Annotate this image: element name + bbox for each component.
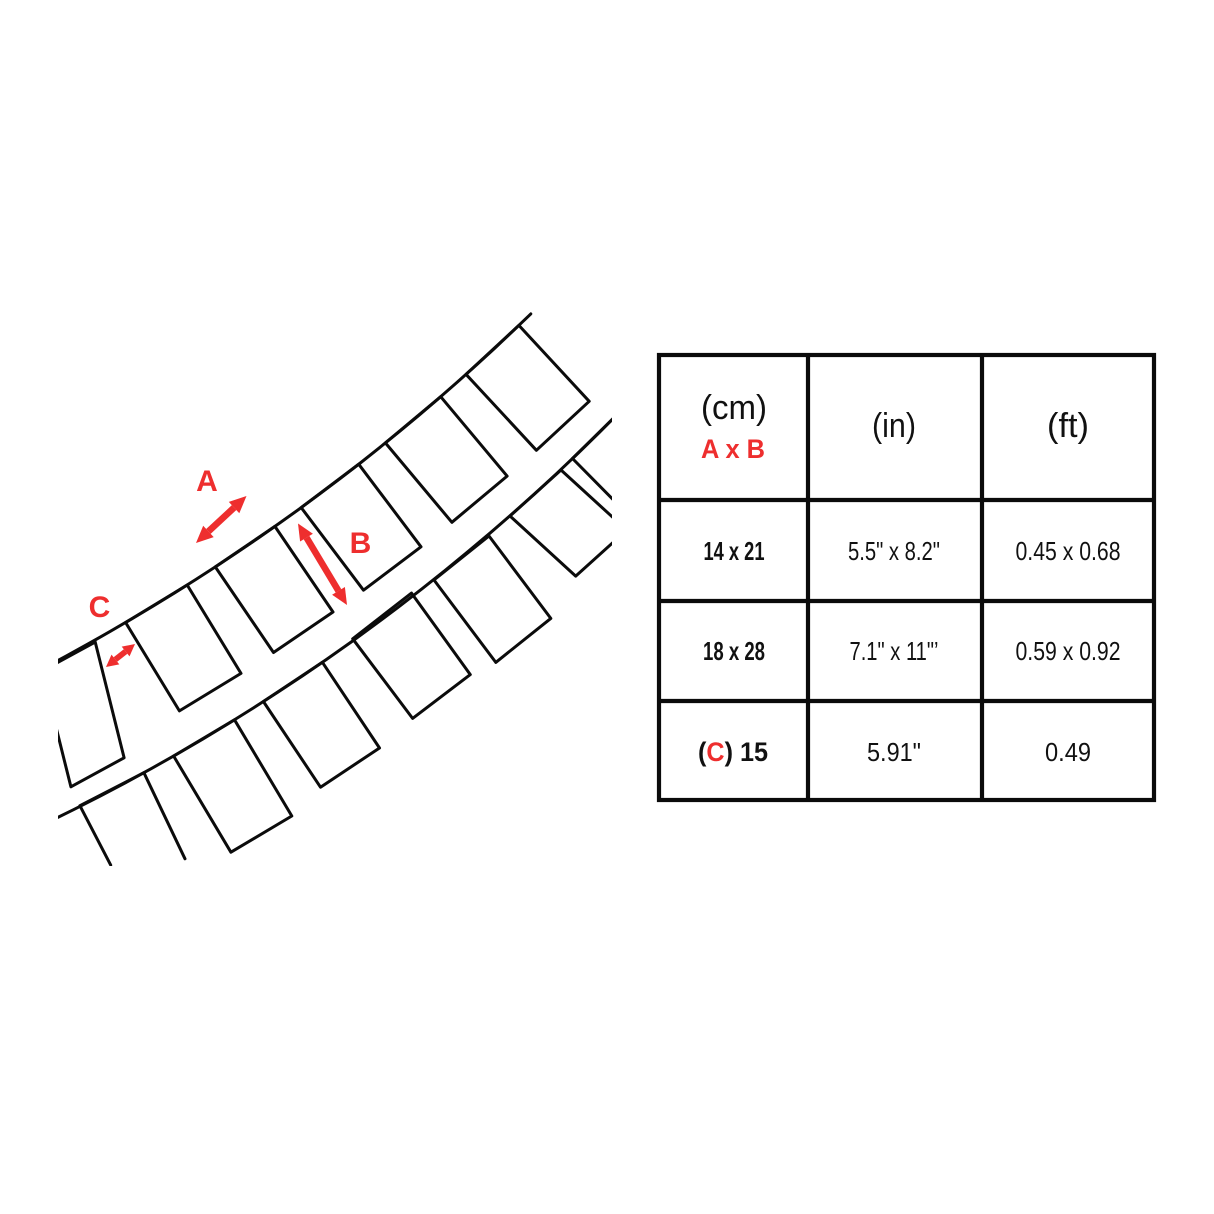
svg-text:(C) 15: (C) 15 — [698, 737, 768, 767]
svg-text:0.59 x 0.92: 0.59 x 0.92 — [1016, 636, 1121, 666]
svg-text:18 x 28: 18 x 28 — [703, 636, 765, 666]
svg-text:(ft): (ft) — [1047, 407, 1089, 445]
svg-text:A: A — [196, 465, 218, 498]
svg-text:C: C — [89, 591, 111, 624]
svg-text:0.45 x 0.68: 0.45 x 0.68 — [1016, 536, 1121, 566]
svg-text:5.5" x 8.2": 5.5" x 8.2" — [848, 536, 940, 566]
svg-text:5.91": 5.91" — [867, 737, 921, 767]
svg-text:(cm): (cm) — [701, 389, 767, 427]
svg-text:A x B: A x B — [701, 434, 765, 464]
svg-text:B: B — [350, 527, 372, 560]
svg-text:(in): (in) — [872, 407, 916, 445]
svg-text:14 x 21: 14 x 21 — [704, 536, 765, 566]
svg-text:0.49: 0.49 — [1045, 737, 1091, 767]
svg-text:7.1" x 11"’: 7.1" x 11"’ — [850, 636, 939, 666]
